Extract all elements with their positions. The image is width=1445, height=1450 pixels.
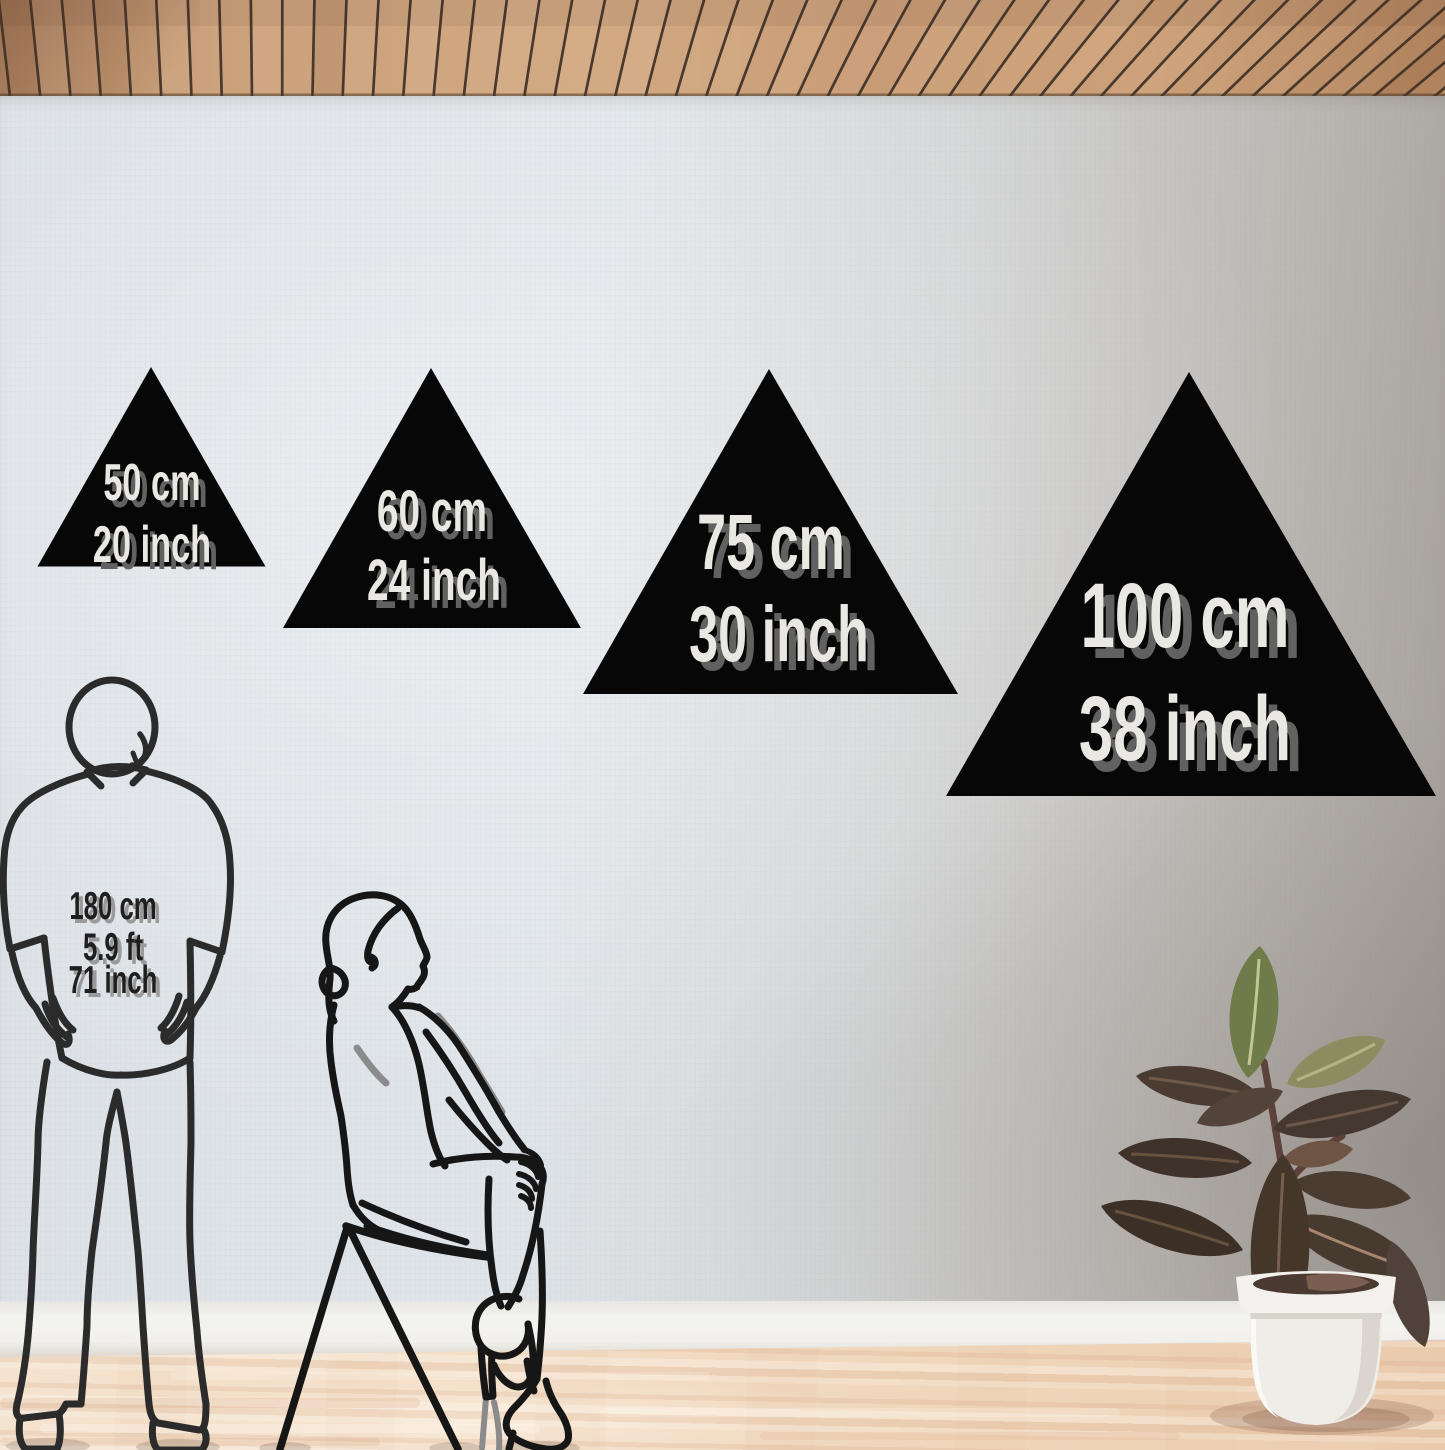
svg-text:20 inch: 20 inch [93,516,211,574]
svg-text:60 cm: 60 cm [377,479,487,544]
svg-text:50 cm: 50 cm [103,454,200,512]
svg-text:71 inch: 71 inch [69,959,158,1003]
svg-text:30 inch: 30 inch [689,590,869,679]
svg-text:24 inch: 24 inch [367,548,501,613]
svg-text:75 cm: 75 cm [697,498,845,587]
svg-text:38 inch: 38 inch [1079,677,1291,780]
svg-text:180 cm: 180 cm [69,885,156,929]
svg-text:100 cm: 100 cm [1080,564,1289,667]
